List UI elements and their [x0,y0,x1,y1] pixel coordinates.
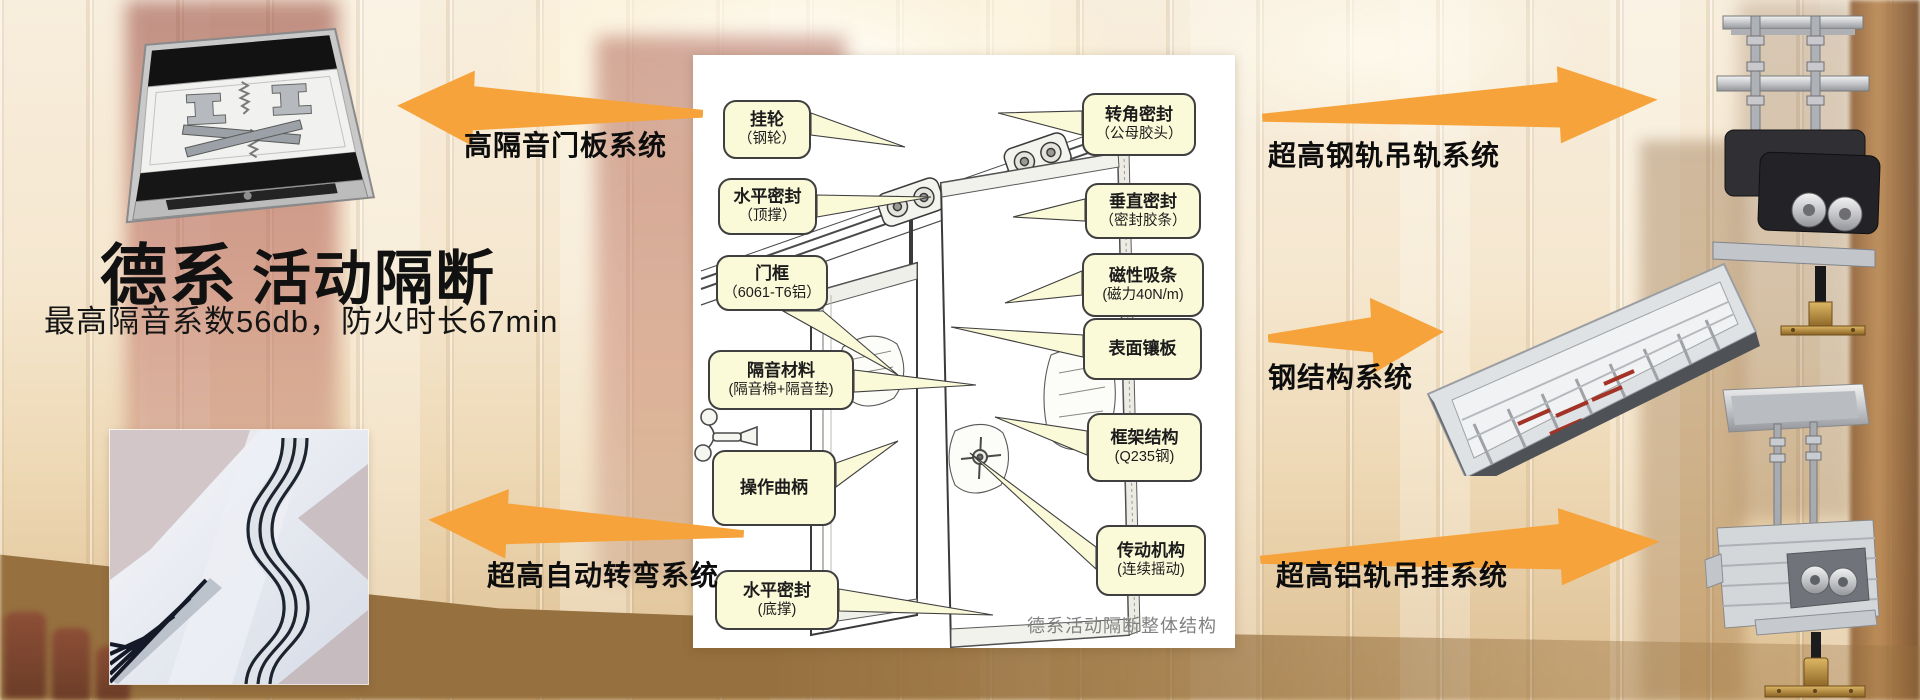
callout-title: 挂轮 [750,110,784,131]
callout-detail: （密封胶条） [1100,213,1187,231]
callout-horizontal-seal-top: 水平密封 （顶撑） [718,178,817,235]
callout-detail: (磁力40N/m) [1102,287,1183,305]
callout-title: 水平密封 [743,581,811,602]
callout-horizontal-seal-bottom: 水平密封 (底撑) [715,570,839,630]
callout-title: 传动机构 [1117,541,1185,562]
callout-title: 垂直密封 [1109,192,1177,213]
callout-title: 磁性吸条 [1109,266,1177,287]
callout-detail: (连续摇动) [1117,562,1185,580]
curved-track-photo [110,430,368,684]
callout-frame-structure: 框架结构 (Q235钢) [1087,413,1202,482]
page-subtitle: 最高隔音系数56db，防火时长67min [44,296,558,341]
callout-magnetic-strip: 磁性吸条 (磁力40N/m) [1082,253,1204,317]
structure-diagram-panel: 挂轮 （钢轮） 水平密封 （顶撑） 门框 （6061-T6铝） 隔音材料 (隔音… [693,55,1235,648]
label-aluminum-rail-system: 超高铝轨吊挂系统 [1276,554,1508,594]
callout-surface-panel: 表面镶板 [1083,318,1202,380]
callout-corner-seal: 转角密封 （公母胶头） [1082,93,1196,156]
door-panel-mechanism-photo [92,26,394,232]
callout-detail: (Q235钢) [1115,449,1175,467]
diagram-caption: 德系活动隔断整体结构 [1027,612,1217,638]
callout-title: 门框 [755,264,789,285]
background-chair [4,612,46,698]
label-door-panel-system: 高隔音门板系统 [464,124,667,164]
callout-door-frame: 门框 （6061-T6铝） [716,255,828,311]
label-steel-structure-system: 钢结构系统 [1268,356,1413,396]
callout-title: 水平密封 [734,187,802,208]
label-steel-rail-system: 超高钢轨吊轨系统 [1268,134,1500,174]
callout-detail: （钢轮） [738,131,796,149]
callout-hanging-wheel: 挂轮 （钢轮） [723,100,811,159]
callout-detail: （顶撑） [739,208,797,226]
callout-detail: (底撑) [758,602,797,620]
callout-detail: (隔音棉+隔音垫) [728,382,833,400]
callout-title: 隔音材料 [747,361,815,382]
label-auto-turn-system: 超高自动转弯系统 [487,554,719,594]
callout-detail: （公母胶头） [1096,126,1183,144]
callout-title: 转角密封 [1105,105,1173,126]
callout-title: 操作曲柄 [740,478,808,499]
background-chair [52,628,90,700]
callout-title: 框架结构 [1111,428,1179,449]
callout-transmission: 传动机构 (连续摇动) [1096,525,1206,596]
aluminum-rail-trolley-photo [1695,384,1895,700]
callout-detail: （6061-T6铝） [723,285,821,303]
callout-title: 表面镶板 [1109,339,1177,360]
infographic-stage: 德系活动隔断 最高隔音系数56db，防火时长67min 高隔音门板系统 超高自动… [0,0,1920,700]
callout-vertical-seal: 垂直密封 （密封胶条） [1085,183,1201,239]
callout-sound-insulation: 隔音材料 (隔音棉+隔音垫) [708,350,854,410]
